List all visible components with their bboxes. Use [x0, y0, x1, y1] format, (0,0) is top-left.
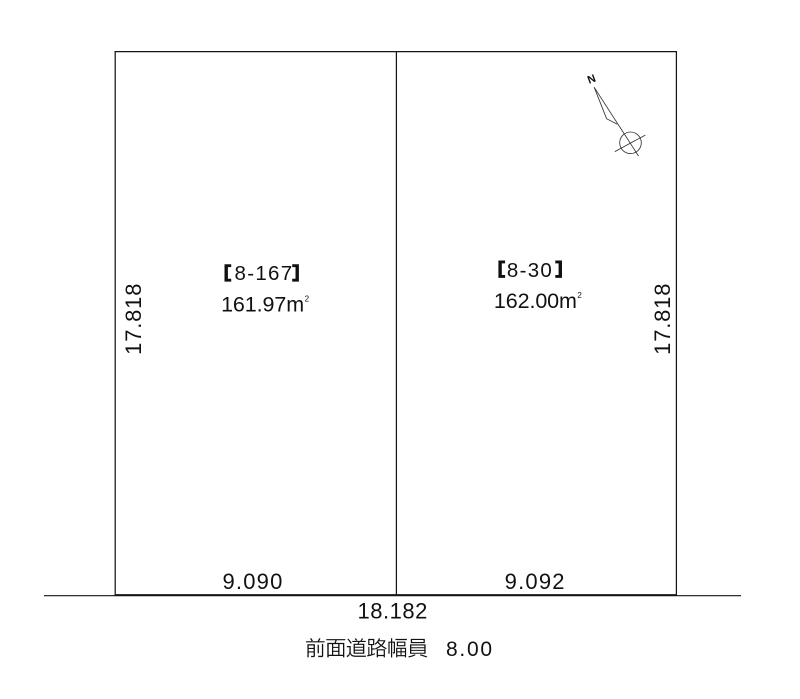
svg-text:8-30: 8-30 — [507, 259, 553, 282]
svg-text:17.818: 17.818 — [650, 283, 675, 355]
svg-text:8-167: 8-167 — [235, 262, 294, 285]
svg-text:8.00: 8.00 — [446, 638, 494, 661]
svg-text:9.090: 9.090 — [222, 569, 283, 594]
svg-text:161.97m2: 161.97m2 — [221, 292, 309, 316]
svg-text:17.818: 17.818 — [121, 283, 146, 355]
svg-text:9.092: 9.092 — [505, 569, 566, 594]
svg-text:18.182: 18.182 — [358, 598, 428, 623]
svg-text:162.00m2: 162.00m2 — [494, 289, 582, 313]
